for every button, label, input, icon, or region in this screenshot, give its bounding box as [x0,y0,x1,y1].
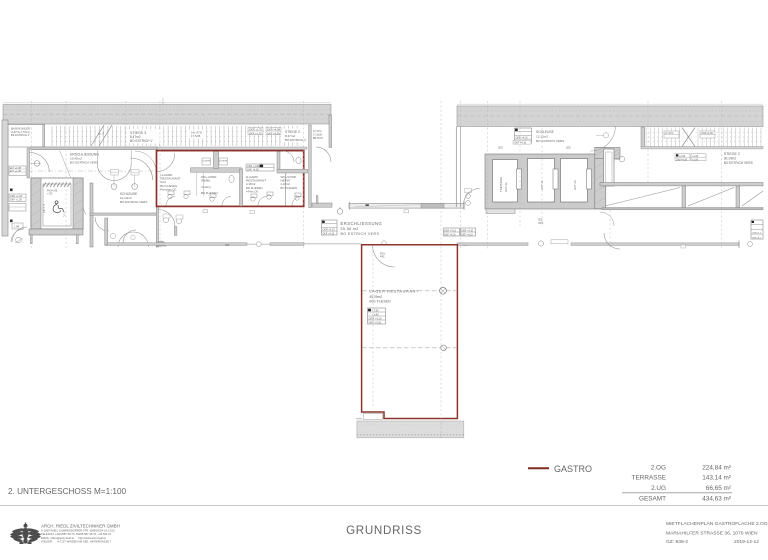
svg-text:BO ESTRICH V: BO ESTRICH V [130,139,153,143]
svg-text:350: 350 [538,218,543,222]
svg-text:+178: +178 [47,193,53,196]
svg-text:ARCH. RIEDL ZIVILTECHNIKER GMB: ARCH. RIEDL ZIVILTECHNIKER GMBH [41,524,120,529]
svg-text:BF ESTRICH V: BF ESTRICH V [11,133,30,137]
svg-text:ERSCHLIESSUNG: ERSCHLIESSUNG [341,221,383,226]
svg-text:BO ESTRICH VERS: BO ESTRICH VERS [724,161,753,165]
svg-text:2.OG: 2.OG [651,464,666,471]
svg-text:GRUNDRISS: GRUNDRISS [346,524,422,537]
svg-text:BO ESTRICH VERS: BO ESTRICH VERS [341,232,380,236]
svg-text:BO FLIESEN: BO FLIESEN [246,186,262,190]
svg-text:2. UNTERGESCHOSS M=1:100: 2. UNTERGESCHOSS M=1:100 [8,487,127,496]
svg-text:OKR +4,10: OKR +4,10 [516,137,529,140]
svg-text:OKF +4,10: OKF +4,10 [369,320,382,324]
svg-text:EMAIL: office@arch-riedl.at: EMAIL: office@arch-riedl.at http://www.a… [41,536,106,540]
svg-text:PKL: PKL [380,255,385,259]
svg-text:BO ESTRICH VERS: BO ESTRICH VERS [70,161,98,165]
svg-text:BO ESTRICH VERS: BO ESTRICH VERS [120,200,147,204]
svg-text:GASTRO: GASTRO [554,464,592,474]
svg-text:55,88 m2: 55,88 m2 [341,227,359,231]
svg-text:1.06: 1.06 [14,225,20,229]
svg-text:BO FLIESEN: BO FLIESEN [161,184,177,188]
svg-text:OKR+4,08: OKR+4,08 [701,132,713,135]
svg-text:OKR +4,08: OKR +4,08 [247,165,260,168]
svg-text:4 (abm): 4 (abm) [201,185,211,189]
svg-text:7.: 7. [63,214,66,218]
svg-text:BO ESTRICH VERS: BO ESTRICH VERS [536,139,564,143]
svg-text:BO FLIESEN: BO FLIESEN [201,191,217,195]
svg-text:OKR +1,75: OKR +1,75 [249,127,262,131]
svg-text:ELT +1,08: ELT +1,08 [10,170,22,173]
svg-text:OKF +1,08: OKF +1,08 [10,199,22,202]
svg-text:OKF+4,1: OKF+4,1 [752,237,762,239]
svg-text:66,65 m²: 66,65 m² [706,485,731,492]
svg-text:OKF +4,08: OKF +4,08 [247,169,259,172]
svg-text:OKR +4,10: OKR +4,10 [369,316,382,320]
svg-text:TELEFON: +43/1/587 38 73, DW08: TELEFON: +43/1/587 38 73, DW08 587 38 76… [41,532,112,536]
svg-text:DUSHE: DUSHE [220,161,228,163]
svg-text:224,84 m²: 224,84 m² [702,464,731,471]
svg-text:SCHLEUSE: SCHLEUSE [536,130,555,134]
svg-text:2.UG: 2.UG [651,485,666,492]
svg-text:STIEGE 2: STIEGE 2 [724,152,740,156]
svg-text:MIETFLACHENPLAN GASTROFLACHE 2: MIETFLACHENPLAN GASTROFLACHE 2.OG [666,521,768,527]
svg-text:30,14m2: 30,14m2 [724,157,737,161]
svg-text:OKR +4,08: OKR +4,08 [267,127,280,131]
svg-text:OKF+4,08: OKF+4,08 [676,159,688,162]
svg-text:BO ESTRICH V: BO ESTRICH V [285,138,306,142]
svg-text:TERRASSE: TERRASSE [632,475,666,482]
svg-text:OKR +4,10: OKR +4,10 [461,229,474,232]
svg-text:17,5/28: 17,5/28 [191,134,201,138]
svg-text:A-1060 WIEN, GUMPENDORFER STR.: A-1060 WIEN, GUMPENDORFER STR. 65/BURO/4… [41,529,115,533]
svg-text:OKR+4,1: OKR+4,1 [752,233,762,235]
svg-text:OKR +4,10: OKR +4,10 [323,229,336,232]
svg-text:OKF +1,75: OKF +1,75 [249,131,262,135]
svg-text:+4,08: +4,08 [679,155,686,158]
svg-text:WEIBL: WEIBL [201,179,211,183]
svg-text:OKF +4,10: OKF +4,10 [444,233,456,236]
svg-text:4-Pers OG: 4-Pers OG [246,189,258,193]
svg-text:OKF +4,10: OKF +4,10 [461,233,473,236]
svg-text:OKF +4,10: OKF +4,10 [514,141,527,144]
svg-text:143,14 m²: 143,14 m² [702,475,731,482]
svg-text:OKR +4,10: OKR +4,10 [444,229,457,232]
svg-text:ATELIER: A-7127 WINDEN AM: ATELIER: A-7127 WINDEN AM SEE, HINTERGAS… [41,539,112,543]
svg-text:OKF +4,10: OKF +4,10 [323,232,335,235]
svg-text:LIFT 4: LIFT 4 [42,204,46,213]
svg-text:OKR +1,08: OKR +1,08 [10,195,23,198]
svg-text:BO FLIESEN: BO FLIESEN [281,186,297,190]
svg-text:LIFT #4: LIFT #4 [573,180,577,190]
svg-text:BOx FLIESEN: BOx FLIESEN [369,300,391,304]
svg-text:LIFT #2: LIFT #2 [504,182,508,192]
svg-text:OKF +4,08: OKF +4,08 [267,131,280,135]
svg-text:434,63 m²: 434,63 m² [702,495,731,502]
svg-text:+1,96: +1,96 [692,155,699,158]
svg-text:2x STG: 2x STG [665,132,674,135]
svg-text:GESAMT: GESAMT [639,495,666,502]
svg-text:350: 350 [225,243,230,247]
svg-text:TREPPENH: TREPPENH [499,177,503,192]
svg-text:45,09m2: 45,09m2 [369,295,382,299]
svg-text:205: 205 [566,146,571,150]
svg-text:GZ: 938-2: GZ: 938-2 [666,539,688,545]
svg-text:2019-12-12: 2019-12-12 [734,539,759,545]
svg-text:MARIAHILFER STRASSE 36, 1070 W: MARIAHILFER STRASSE 36, 1070 WIEN [666,531,758,537]
svg-text:OKF: OKF [538,221,544,225]
svg-text:205: 205 [498,146,503,150]
svg-text:+1,96: +1,96 [692,159,699,162]
svg-text:BETR 87: BETR 87 [313,137,324,140]
svg-text:DUSHE: DUSHE [203,161,211,163]
svg-text:4x 17: 4x 17 [98,133,105,136]
